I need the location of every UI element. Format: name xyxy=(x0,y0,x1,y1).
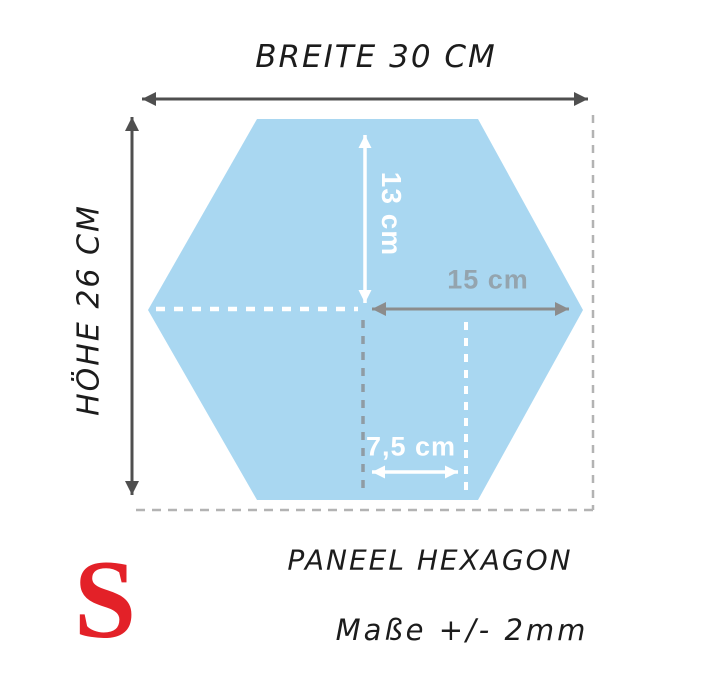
dim-7-5cm-label: 7,5 cm xyxy=(366,432,456,463)
dim-13cm-label: 13 cm xyxy=(375,172,407,256)
product-title: PANEEL HEXAGON xyxy=(287,544,572,577)
width-dimension-label: BREITE 30 CM xyxy=(255,39,497,75)
hexagon-panel-dimension-diagram: BREITE 30 CM HÖHE 26 CM 13 cm 15 cm 7,5 … xyxy=(0,0,717,697)
tolerance-note: Maße +/- 2mm xyxy=(336,613,589,647)
height-dimension-label: HÖHE 26 CM xyxy=(72,204,107,416)
brand-watermark-letter: S xyxy=(74,544,136,656)
dim-15cm-label: 15 cm xyxy=(447,265,529,296)
